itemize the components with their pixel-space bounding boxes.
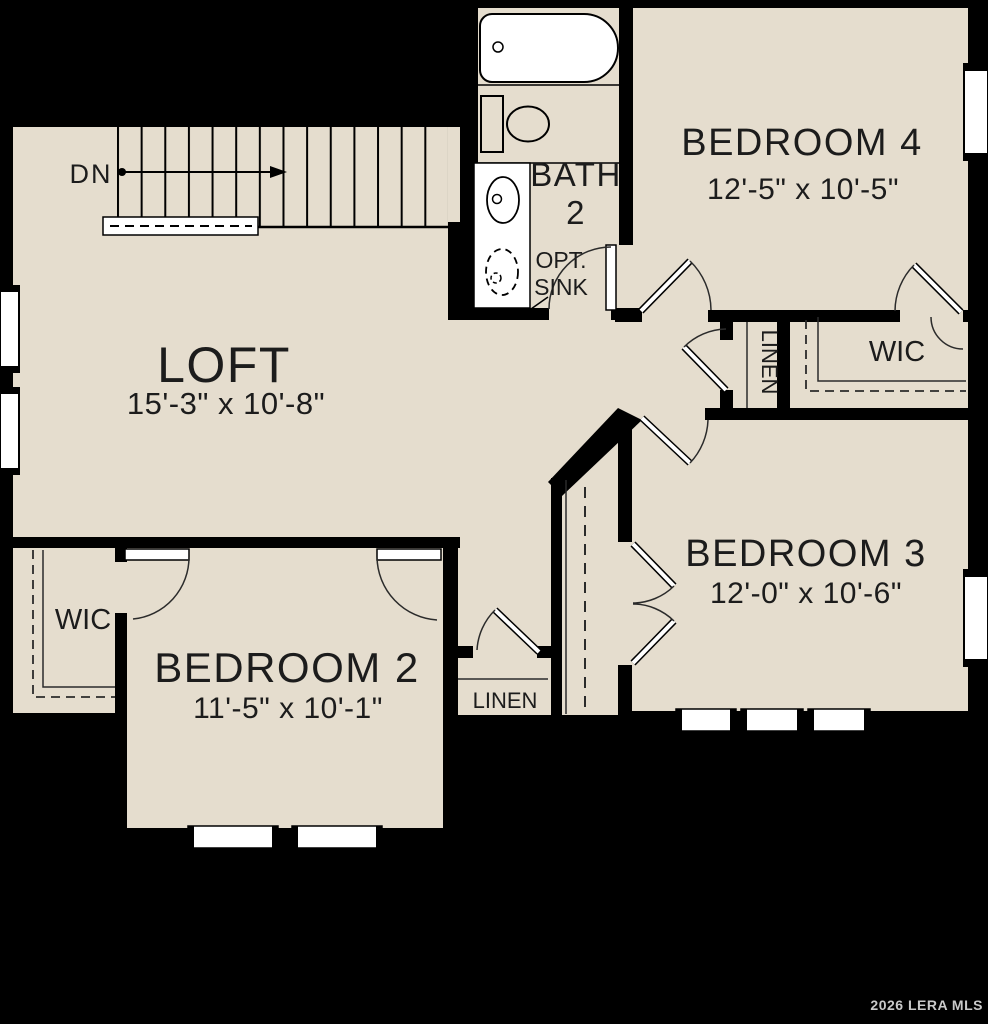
window-bedroom3-bottom	[676, 709, 870, 731]
bedroom3-floor	[618, 420, 968, 731]
wall-linen-lower-top-left	[458, 646, 473, 658]
window-bedroom3-right	[964, 570, 988, 666]
wall-bath-right	[619, 0, 633, 245]
wall-wic-right-bottom	[705, 408, 968, 420]
linen-hall-floor	[443, 548, 632, 730]
wall-wic-left-bottom	[0, 713, 127, 735]
wall-hall-left	[551, 478, 562, 730]
wall-stair-corner	[448, 222, 462, 320]
wall-bed2-right	[443, 548, 458, 848]
bedroom4-dims: 12'-5" x 10'-5"	[707, 173, 899, 206]
wic-left-label: WIC	[55, 604, 111, 636]
opt-sink-label-line1: OPT.	[535, 247, 586, 273]
bath2-number: 2	[566, 194, 586, 231]
wall-bed3-left-top	[618, 420, 632, 542]
loft-label: LOFT	[157, 337, 291, 393]
floor-plan-drawing: LOFT 15'-3" x 10'-8" BEDROOM 4 12'-5" x …	[0, 0, 988, 1024]
loft-dims: 15'-3" x 10'-8"	[127, 386, 325, 421]
bedroom3-label: BEDROOM 3	[685, 533, 927, 575]
wic-right-label: WIC	[869, 336, 925, 368]
bathtub-icon	[480, 14, 618, 82]
wall-linen-hall-post-top	[720, 322, 733, 340]
wall-bed2-bottom	[115, 828, 458, 847]
bath2-label: BATH	[530, 156, 622, 193]
bedroom4-label: BEDROOM 4	[681, 122, 923, 164]
staircase	[103, 127, 448, 235]
vanity-icon	[474, 163, 530, 308]
wall-bed4-bottom-right	[963, 310, 975, 322]
wall-bath-bottom	[448, 308, 549, 320]
wall-bed4-bottom-mid	[708, 310, 900, 322]
wall-bed4-bottom-left	[615, 308, 642, 322]
wall-loft-top	[0, 113, 478, 127]
wall-loft-bottom	[0, 537, 460, 548]
stair-treads	[117, 127, 448, 226]
linen-lower-label: LINEN	[473, 688, 538, 713]
bedroom3-dims: 12'-0" x 10'-6"	[710, 577, 902, 610]
floor-plan: LOFT 15'-3" x 10'-8" BEDROOM 4 12'-5" x …	[0, 0, 988, 1024]
opt-sink-label-line2: SINK	[534, 274, 588, 300]
mls-watermark: 2026 LERA MLS	[870, 997, 983, 1013]
bedroom2-dims: 11'-5" x 10'-1"	[193, 692, 383, 725]
bedroom2-label: BEDROOM 2	[154, 644, 420, 691]
window-bedroom4-right	[964, 64, 988, 160]
stairs-dn-label: DN	[70, 159, 113, 189]
wall-linen-lower-bottom	[443, 715, 632, 730]
linen-hall-label: LINEN	[757, 330, 782, 395]
